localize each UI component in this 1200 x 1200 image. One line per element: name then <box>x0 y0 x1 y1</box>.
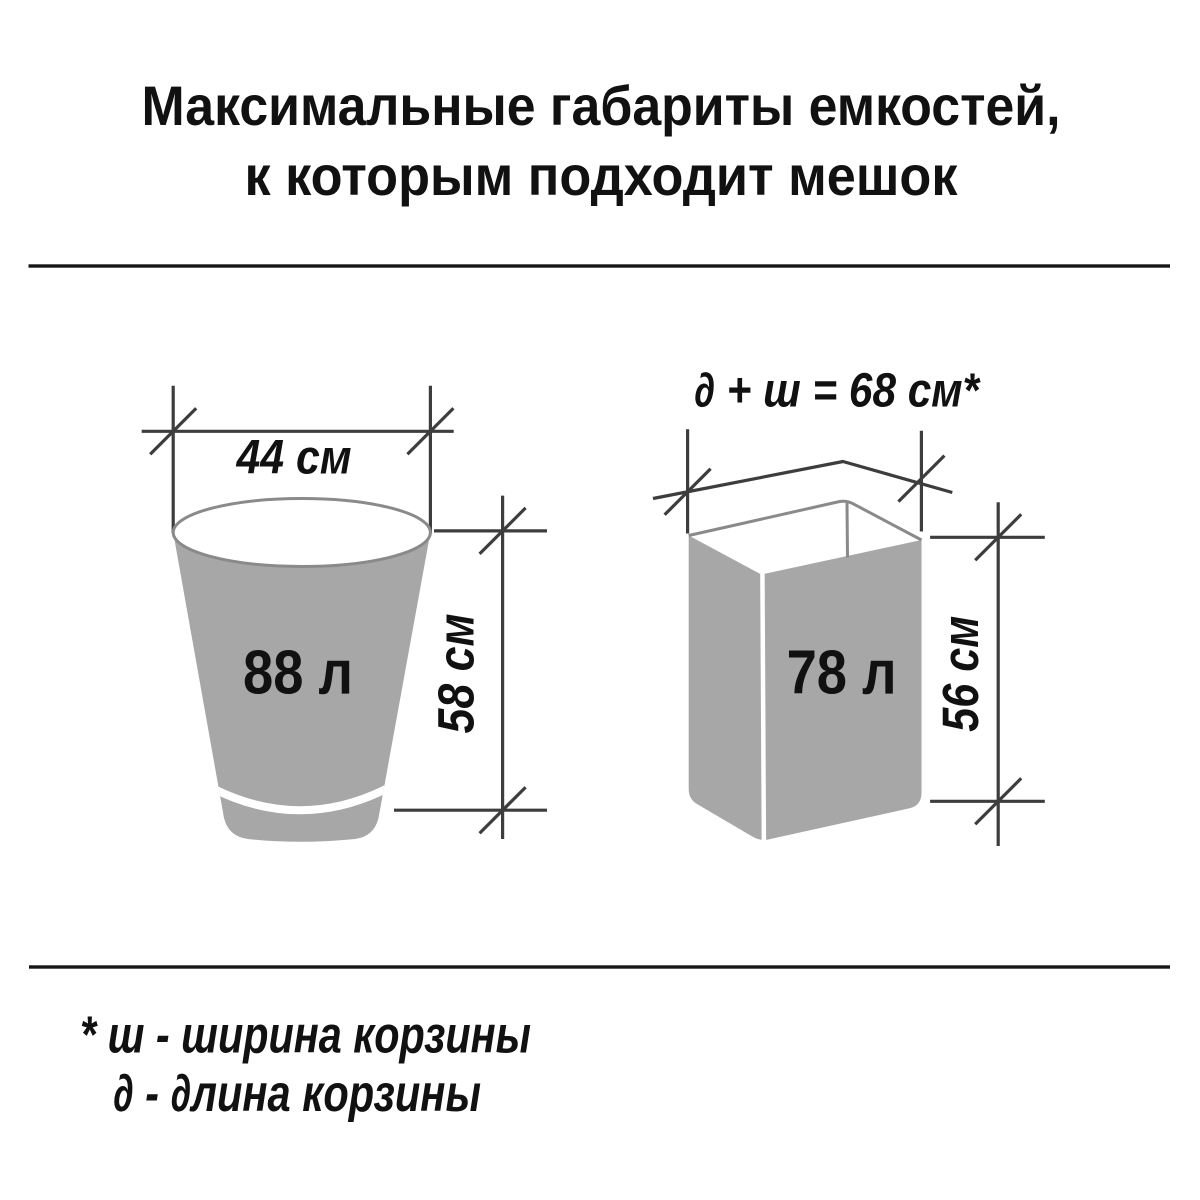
svg-text:56 см: 56 см <box>932 616 989 732</box>
svg-text:Максимальные габариты емкостей: Максимальные габариты емкостей, <box>142 74 1061 137</box>
svg-text:44 см: 44 см <box>236 431 352 484</box>
svg-text:∂ + ш = 68 см*: ∂ + ш = 68 см* <box>694 365 981 418</box>
svg-text:58 см: 58 см <box>427 614 484 734</box>
svg-text:∂ - ∂лина корзины: ∂ - ∂лина корзины <box>113 1065 481 1123</box>
svg-text:к которым подходит мешок: к которым подходит мешок <box>245 144 959 207</box>
svg-text:* ш - ширина корзины: * ш - ширина корзины <box>80 1007 531 1065</box>
svg-text:78 л: 78 л <box>787 638 897 707</box>
svg-text:88 л: 88 л <box>243 639 353 708</box>
